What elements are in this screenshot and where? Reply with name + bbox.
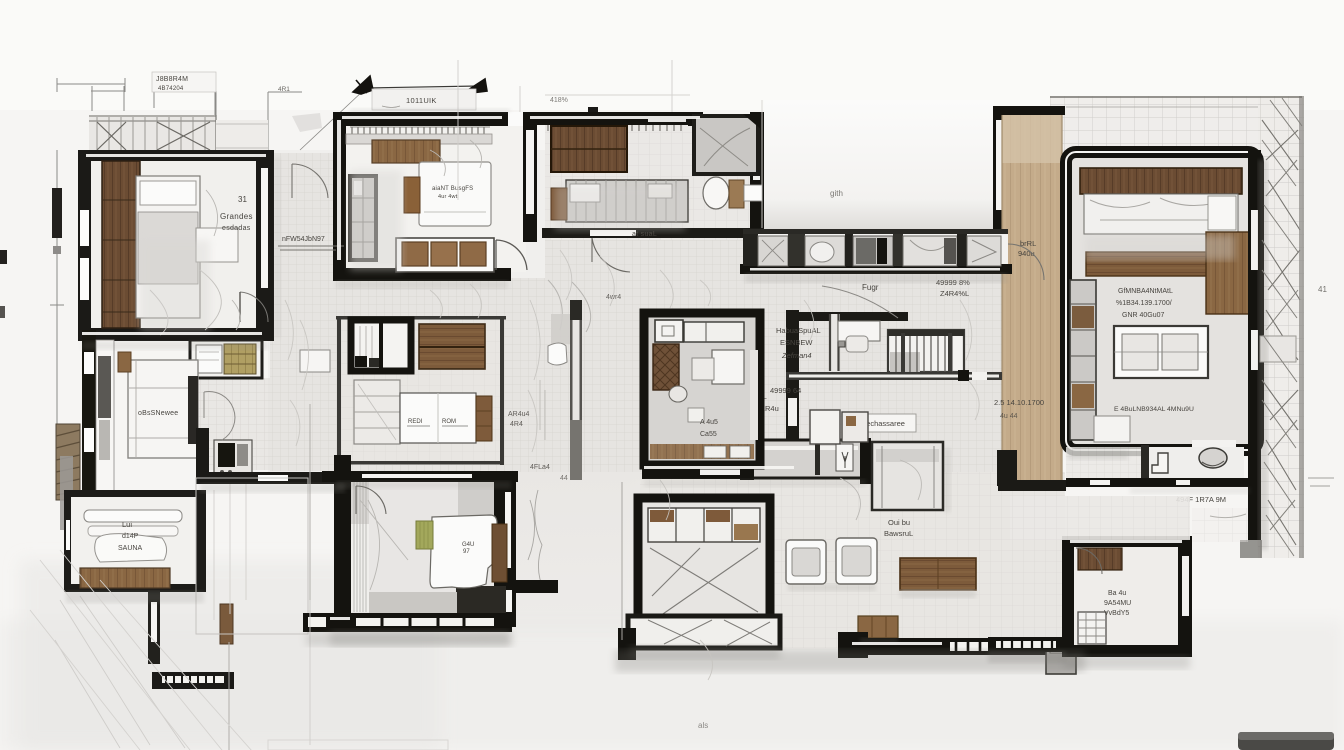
svg-text:4B74204: 4B74204 [158,86,184,92]
svg-text:Fugr: Fugr [862,283,879,292]
svg-text:1011UIK: 1011UIK [406,96,437,105]
svg-text:44: 44 [560,475,568,482]
svg-text:31: 31 [238,195,247,204]
svg-text:A 4u5: A 4u5 [700,419,718,426]
svg-text:nFW54JbN97: nFW54JbN97 [282,236,325,243]
svg-text:esdadas: esdadas [222,225,251,232]
svg-text:ROM: ROM [442,419,456,425]
svg-text:GfMNBA4NtMAtL: GfMNBA4NtMAtL [1118,288,1173,295]
svg-text:418%: 418% [550,97,568,104]
svg-text:Z4R4%L: Z4R4%L [940,289,969,298]
svg-text:Ca55: Ca55 [700,431,717,438]
svg-text:Grandes: Grandes [220,212,253,221]
svg-text:9A54MU: 9A54MU [1104,600,1131,607]
svg-text:at suaL: at suaL [632,231,657,238]
svg-text:oBsSNewee: oBsSNewee [138,410,178,417]
svg-text:4u 44: 4u 44 [1000,413,1018,420]
svg-text:4ur 4wt: 4ur 4wt [438,194,458,200]
svg-text:SAUNA: SAUNA [118,545,142,552]
svg-text:41: 41 [1318,285,1327,294]
svg-text:49999 64: 49999 64 [770,386,801,395]
svg-text:aiaNT BusgFS: aiaNT BusgFS [432,186,473,192]
svg-text:Oui bu: Oui bu [888,518,910,527]
svg-text:Lui: Lui [122,520,132,529]
svg-text:Ba 4u: Ba 4u [1108,590,1126,597]
svg-text:97: 97 [463,549,470,555]
svg-text:2.5 14.10.1700: 2.5 14.10.1700 [994,398,1044,407]
svg-text:4R4: 4R4 [510,421,523,428]
svg-text:4FLa4: 4FLa4 [530,464,550,471]
svg-text:E 4BuLNB934AL 4MNu9U: E 4BuLNB934AL 4MNu9U [1114,406,1194,413]
svg-text:als: als [698,721,708,730]
svg-text:%1B34.139.1700/: %1B34.139.1700/ [1116,300,1172,307]
svg-text:VvBdY5: VvBdY5 [1104,610,1129,617]
svg-text:G4U: G4U [462,542,474,548]
svg-text:gith: gith [830,189,843,198]
svg-text:ESNBEW: ESNBEW [780,338,813,347]
svg-text:GNR 40Gu07: GNR 40Gu07 [1122,312,1165,319]
svg-text:AR4u4: AR4u4 [508,411,530,418]
svg-text:4R1: 4R1 [278,86,290,93]
svg-text:Zefman4: Zefman4 [781,351,812,360]
svg-text:J8B8R4M: J8B8R4M [156,76,188,83]
svg-text:REDI: REDI [408,419,423,425]
svg-text:d14P: d14P [122,533,139,540]
svg-text:BawsruL: BawsruL [884,529,913,538]
